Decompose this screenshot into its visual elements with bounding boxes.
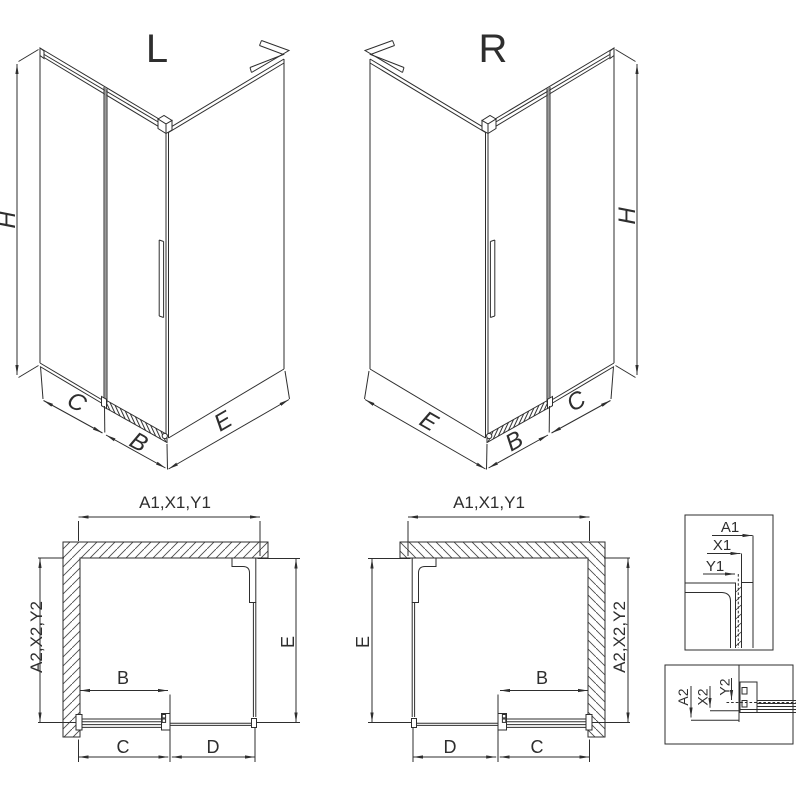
plan-left-fixed-label: C <box>117 737 130 757</box>
detail-a2-label: A2 <box>675 688 691 705</box>
iso-left-side-label: E <box>210 405 238 437</box>
iso-right-fixed-label: C <box>562 385 591 417</box>
iso-left-height-label: H <box>0 211 21 229</box>
iso-right-geometry <box>365 41 638 470</box>
corner-profile-detail <box>685 583 753 649</box>
detail-x2-label: X2 <box>695 688 711 705</box>
plan-right-opening-label: D <box>444 737 457 757</box>
plan-right-geometry <box>368 517 630 762</box>
iso-right-door-label: B <box>501 426 528 457</box>
detail-y2-label: Y2 <box>717 678 733 695</box>
plan-left-depth-label: A2,X2,Y2 <box>27 601 46 673</box>
detail-x1-label: X1 <box>713 537 731 554</box>
iso-view-left: L H C B E <box>0 27 290 470</box>
plan-left-geometry <box>38 517 300 762</box>
plan-right-door-label: B <box>536 668 548 688</box>
plan-right-width-label: A1,X1,Y1 <box>453 493 525 512</box>
detail-width-measuring: A1 X1 Y1 <box>685 515 773 650</box>
iso-right-height-label: H <box>614 207 641 225</box>
iso-view-right: R H E B C <box>365 27 642 470</box>
detail-a1-label: A1 <box>721 519 739 536</box>
iso-left-title: L <box>146 27 168 71</box>
plan-left-width-label: A1,X1,Y1 <box>139 493 211 512</box>
technical-drawing-page: L H C B E R H E B C A1,X1,Y1 A2,X2,Y2 E … <box>0 0 800 800</box>
plan-view-right: A1,X1,Y1 E A2,X2,Y2 B D C <box>353 493 630 762</box>
plan-right-side-label: E <box>353 636 373 648</box>
plan-left-opening-label: D <box>207 737 220 757</box>
plan-right-fixed-label: C <box>531 737 544 757</box>
iso-left-door-label: B <box>125 427 152 458</box>
detail-depth-measuring: A2 X2 Y2 <box>665 665 796 744</box>
detail-y1-label: Y1 <box>706 558 724 575</box>
shower-enclosure-drawing: L H C B E R H E B C A1,X1,Y1 A2,X2,Y2 E … <box>0 0 800 800</box>
plan-left-side-label: E <box>278 636 298 648</box>
plan-left-door-label: B <box>117 668 129 688</box>
plan-view-left: A1,X1,Y1 A2,X2,Y2 E B C D <box>27 493 300 762</box>
iso-right-title: R <box>479 27 508 71</box>
plan-right-depth-label: A2,X2,Y2 <box>610 601 629 673</box>
rail-profile-detail <box>740 682 796 713</box>
iso-left-geometry <box>17 41 290 470</box>
